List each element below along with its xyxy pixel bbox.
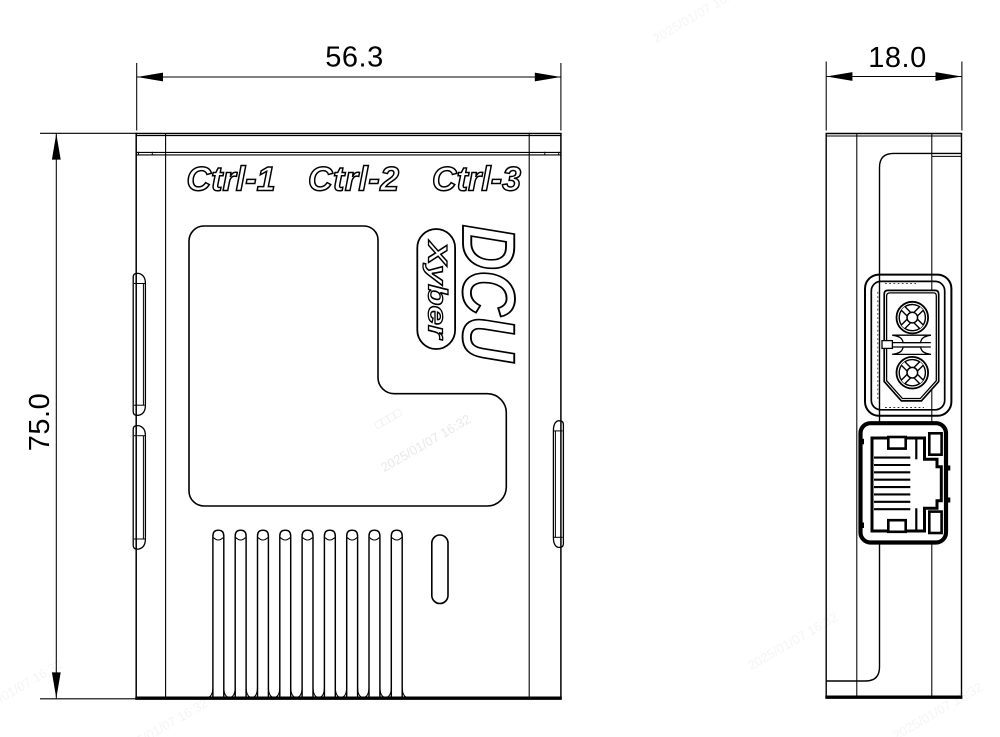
svg-text:18.0: 18.0 [868,42,926,74]
svg-text:Ctrl-3: Ctrl-3 [432,161,521,199]
svg-text:56.3: 56.3 [325,42,383,74]
svg-text:Ctrl-2: Ctrl-2 [308,161,399,199]
svg-text:DCU: DCU [447,225,530,363]
svg-text:75.0: 75.0 [24,393,56,451]
svg-text:Xyber: Xyber [423,239,453,341]
svg-text:Ctrl-1: Ctrl-1 [187,161,276,199]
